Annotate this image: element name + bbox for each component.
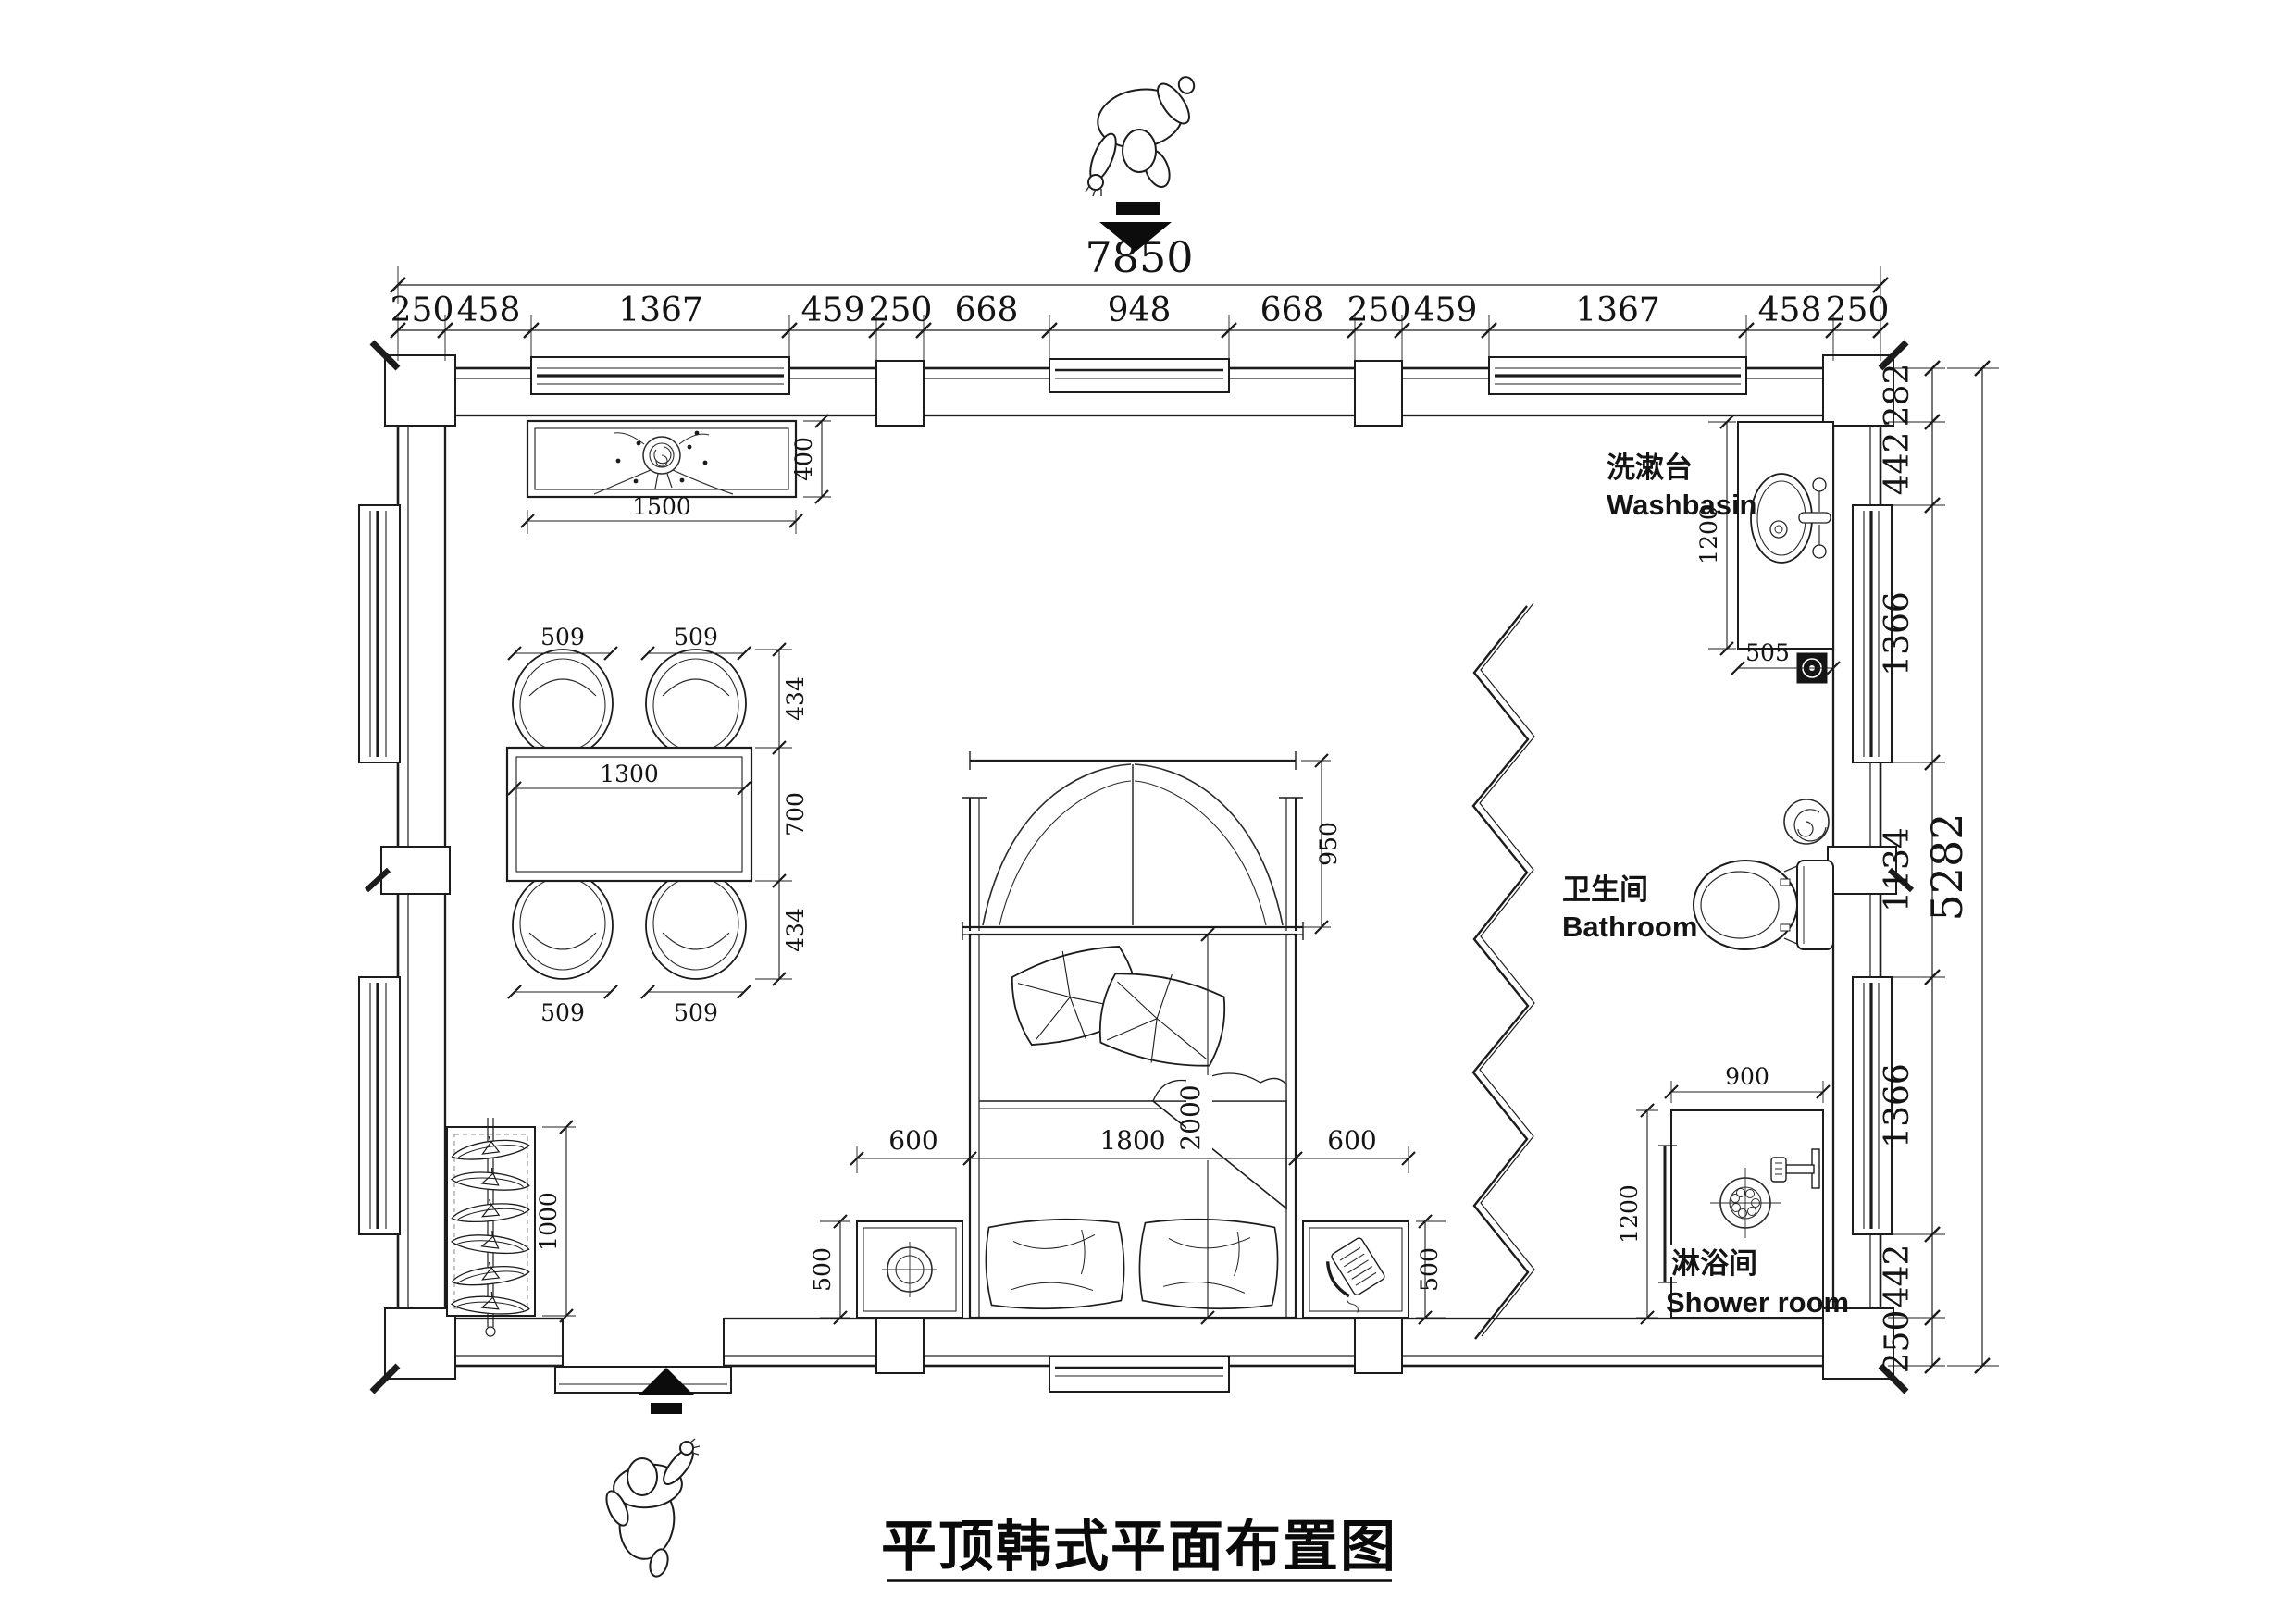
dim-chair-w: 509 — [540, 624, 585, 650]
dim-tv-width: 1500 — [632, 493, 691, 520]
dim-bed-width: 1800 — [1099, 1125, 1165, 1156]
window-top-left — [531, 357, 789, 394]
label-bathroom-zh: 卫生间 — [1562, 873, 1648, 906]
entry-arrow-bar — [651, 1403, 682, 1414]
dim-tv-depth: 400 — [790, 437, 817, 481]
dim-top-10: 1367 — [1575, 291, 1660, 329]
dim-chair-w: 509 — [674, 999, 718, 1026]
dim-headboard: 950 — [1315, 822, 1342, 866]
dim-top-9: 459 — [1414, 291, 1478, 329]
label-washbasin-en: Washbasin — [1607, 489, 1757, 521]
dim-bed-side: 600 — [888, 1125, 937, 1156]
dim-shower-width: 900 — [1725, 1063, 1769, 1090]
dim-right-3: 1134 — [1879, 827, 1917, 912]
dining-chair — [513, 650, 613, 757]
right-dimension-total: 5282 — [1922, 361, 1999, 1373]
dim-nightstand: 500 — [809, 1247, 836, 1292]
dim-table-w: 1300 — [600, 761, 659, 787]
entry-figure-bottom — [602, 1368, 700, 1579]
dim-bed-side: 600 — [1327, 1125, 1376, 1156]
floor-plan-svg: 7850 250 458 1367 459 250 668 948 668 — [0, 0, 2296, 1623]
window-left-lower — [359, 977, 400, 1234]
dim-chair-w: 509 — [674, 624, 718, 650]
dim-top-11: 458 — [1758, 291, 1822, 329]
dim-top-7: 668 — [1260, 291, 1324, 329]
bed-pillow — [1138, 1217, 1279, 1310]
floor-plan-page: 7850 250 458 1367 459 250 668 948 668 — [0, 0, 2296, 1623]
dim-chair-d: 434 — [782, 908, 809, 952]
entry-figure-top — [1086, 74, 1197, 252]
nightstand-left — [857, 1221, 962, 1318]
entry-door-opening — [555, 1314, 731, 1393]
label-shower-en: Shower room — [1666, 1286, 1849, 1319]
dim-top-1: 458 — [457, 291, 521, 329]
dim-top-3: 459 — [801, 291, 865, 329]
dim-top-0: 250 — [391, 291, 454, 329]
dining-chair — [646, 872, 746, 979]
dim-top-6: 948 — [1108, 291, 1172, 329]
dim-basin-width: 505 — [1745, 639, 1790, 666]
dim-total-height: 5282 — [1922, 812, 1972, 921]
label-washbasin-zh: 洗漱台 — [1607, 452, 1693, 484]
dim-top-8: 250 — [1347, 291, 1411, 329]
dining-chair — [646, 650, 746, 757]
dim-right-4: 1366 — [1879, 1063, 1917, 1148]
window-top-center — [1049, 359, 1229, 392]
window-top-right — [1489, 357, 1746, 394]
dining-chair — [513, 872, 613, 979]
label-shower-zh: 淋浴间 — [1671, 1247, 1757, 1280]
dim-chair-d: 434 — [782, 676, 809, 721]
drawing-title: 平顶韩式平面布置图 — [881, 1516, 1397, 1580]
dim-top-4: 250 — [869, 291, 933, 329]
toilet — [1694, 861, 1833, 949]
dim-right-1: 442 — [1879, 432, 1917, 496]
dim-table-d: 700 — [782, 792, 809, 836]
window-bottom-center — [1049, 1357, 1229, 1392]
dim-right-5: 442 — [1879, 1245, 1917, 1308]
dim-top-2: 1367 — [618, 291, 703, 329]
bed-pillow — [985, 1217, 1125, 1310]
dim-right-6: 250 — [1879, 1310, 1917, 1374]
window-left-upper — [359, 505, 400, 762]
label-bathroom-en: Bathroom — [1562, 911, 1697, 943]
top-dimension-chain: 250 458 1367 459 250 668 948 668 250 459… — [391, 291, 1890, 361]
dim-nightstand: 500 — [1416, 1247, 1443, 1292]
dim-bed-length: 2000 — [1175, 1084, 1206, 1150]
dim-right-0: 282 — [1879, 364, 1917, 427]
page-title: 平顶韩式平面布置图 — [881, 1516, 1397, 1578]
entry-arrow-bar — [1116, 202, 1160, 215]
nightstand-right — [1303, 1221, 1409, 1318]
dim-top-5: 668 — [955, 291, 1019, 329]
dim-chair-w: 509 — [540, 999, 585, 1026]
dim-shower-depth: 1200 — [1616, 1184, 1643, 1244]
dim-right-2: 1366 — [1879, 591, 1917, 676]
dim-rack-length: 1000 — [535, 1192, 562, 1251]
dim-top-12: 250 — [1826, 291, 1890, 329]
